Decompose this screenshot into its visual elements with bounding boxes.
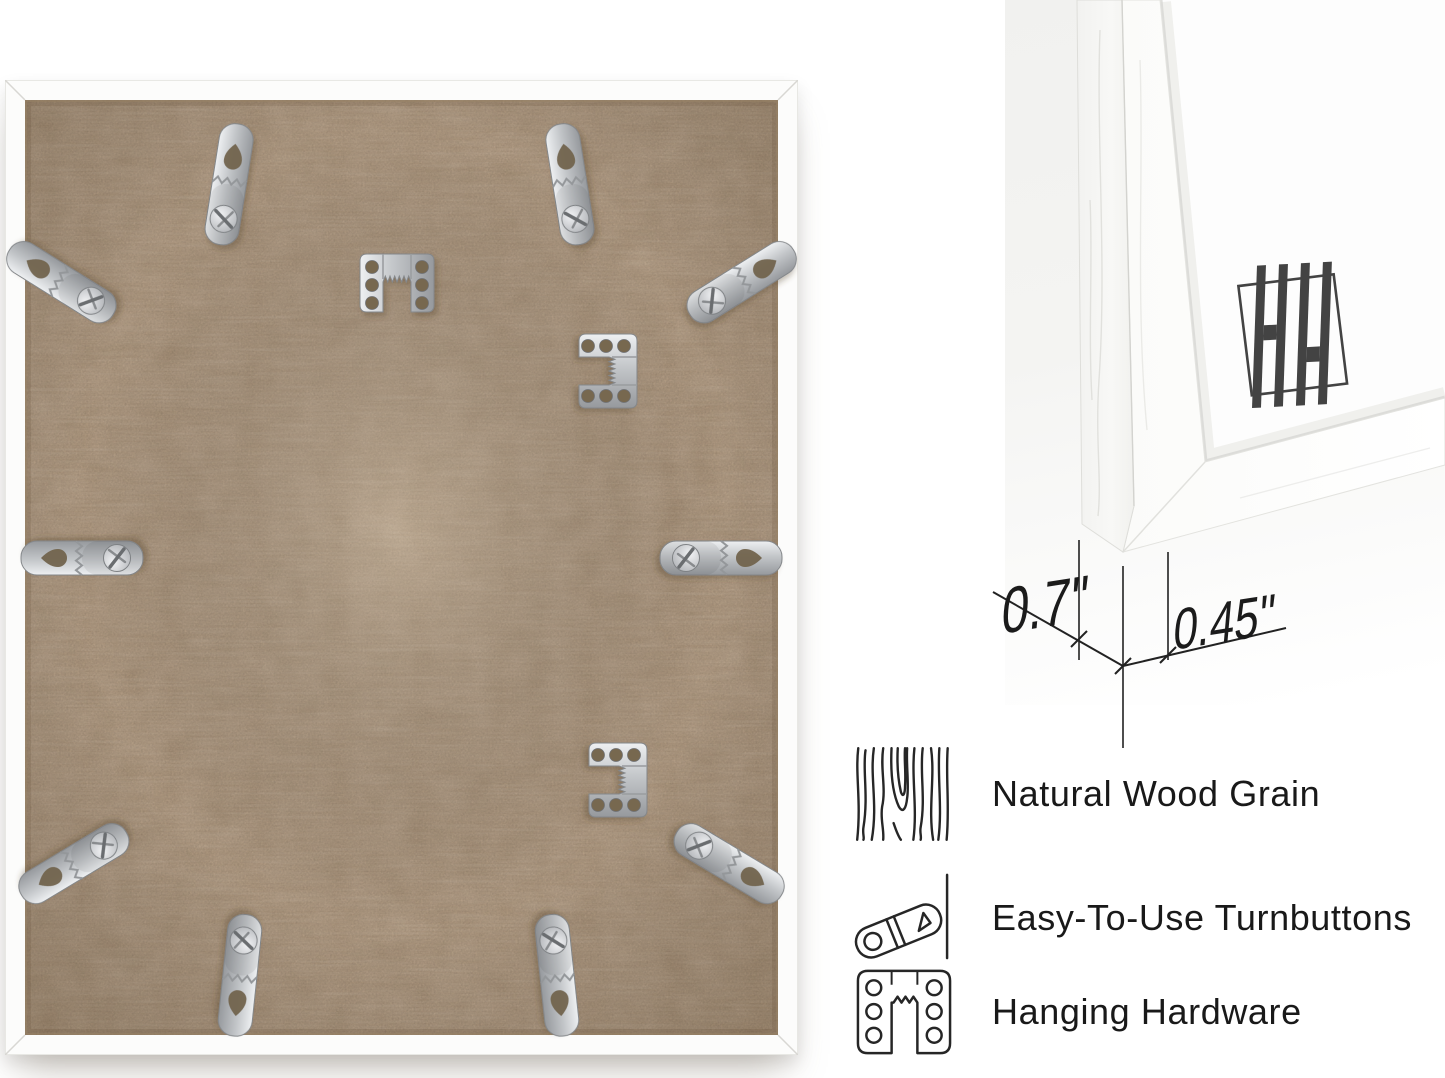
frame-corner-photo: 0.7" 0.45" bbox=[950, 0, 1445, 770]
feature-row-turnbuttons: Easy-To-Use Turnbuttons bbox=[852, 868, 1412, 968]
feature-label: Natural Wood Grain bbox=[992, 773, 1320, 815]
face-width-measurement-label: 0.45" bbox=[1171, 582, 1278, 663]
turnbutton bbox=[21, 541, 143, 575]
feature-row-wood-grain: Natural Wood Grain bbox=[852, 744, 1412, 844]
wood-grain-icon bbox=[852, 746, 956, 842]
turnbutton-icon bbox=[852, 870, 956, 966]
feature-row-hanging-hardware: Hanging Hardware bbox=[852, 962, 1412, 1062]
depth-measurement-label: 0.7" bbox=[999, 562, 1091, 649]
turnbutton bbox=[660, 541, 782, 575]
frame-back-photo bbox=[5, 80, 798, 1055]
feature-label: Hanging Hardware bbox=[992, 991, 1302, 1033]
feature-label: Easy-To-Use Turnbuttons bbox=[992, 897, 1412, 939]
frame-back-canvas bbox=[5, 80, 798, 1055]
product-image: 0.7" 0.45" Natural Wood Grain bbox=[0, 0, 1445, 1078]
hanging-hardware-icon bbox=[852, 964, 956, 1060]
